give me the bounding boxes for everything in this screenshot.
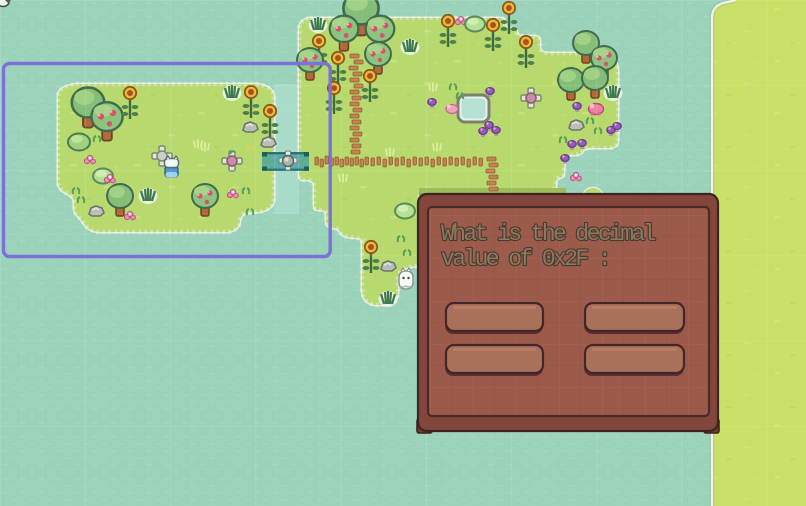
svg-text:What is the decimal: What is the decimal <box>441 221 656 247</box>
svg-text:value of 0x2F :: value of 0x2F : <box>441 246 609 272</box>
